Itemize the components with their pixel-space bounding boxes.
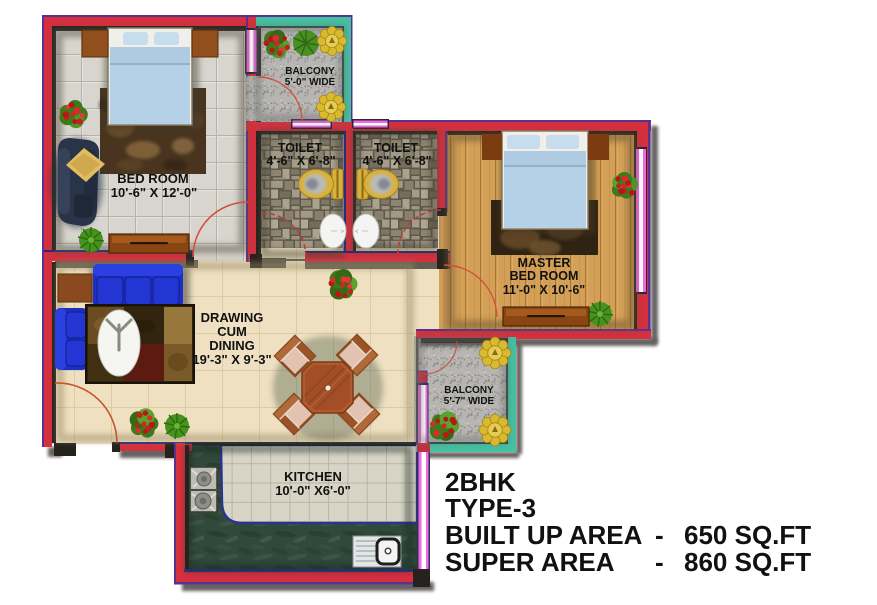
svg-text:KITCHEN: KITCHEN bbox=[284, 469, 342, 484]
svg-text:5'-7" WIDE: 5'-7" WIDE bbox=[444, 396, 495, 407]
svg-text:4'-6" X 6'-8": 4'-6" X 6'-8" bbox=[362, 154, 431, 168]
svg-text:TOILET: TOILET bbox=[374, 141, 419, 155]
svg-text:860 SQ.FT: 860 SQ.FT bbox=[684, 547, 811, 577]
svg-text:-: - bbox=[655, 520, 664, 550]
svg-text:DRAWING: DRAWING bbox=[201, 310, 264, 325]
svg-text:5'-0" WIDE: 5'-0" WIDE bbox=[285, 77, 336, 88]
svg-text:BALCONY: BALCONY bbox=[444, 385, 494, 396]
svg-text:SUPER AREA: SUPER AREA bbox=[445, 547, 615, 577]
svg-text:19'-3" X 9'-3": 19'-3" X 9'-3" bbox=[192, 352, 271, 367]
svg-text:11'-0" X 10'-6": 11'-0" X 10'-6" bbox=[503, 283, 586, 297]
svg-text:10'-6" X 12'-0": 10'-6" X 12'-0" bbox=[111, 185, 197, 200]
svg-text:BUILT UP AREA: BUILT UP AREA bbox=[445, 520, 643, 550]
svg-text:10'-0" X6'-0": 10'-0" X6'-0" bbox=[275, 483, 351, 498]
svg-text:MASTER: MASTER bbox=[518, 256, 571, 270]
svg-text:TYPE-3: TYPE-3 bbox=[445, 493, 536, 523]
svg-text:4'-6" X 6'-8": 4'-6" X 6'-8" bbox=[266, 154, 335, 168]
svg-text:DINING: DINING bbox=[209, 338, 255, 353]
svg-text:TOILET: TOILET bbox=[278, 141, 323, 155]
svg-text:BALCONY: BALCONY bbox=[285, 66, 335, 77]
svg-text:-: - bbox=[655, 547, 664, 577]
svg-text:650 SQ.FT: 650 SQ.FT bbox=[684, 520, 811, 550]
svg-text:BED ROOM: BED ROOM bbox=[510, 269, 579, 283]
svg-text:CUM: CUM bbox=[217, 324, 247, 339]
svg-text:BED ROOM: BED ROOM bbox=[117, 171, 189, 186]
